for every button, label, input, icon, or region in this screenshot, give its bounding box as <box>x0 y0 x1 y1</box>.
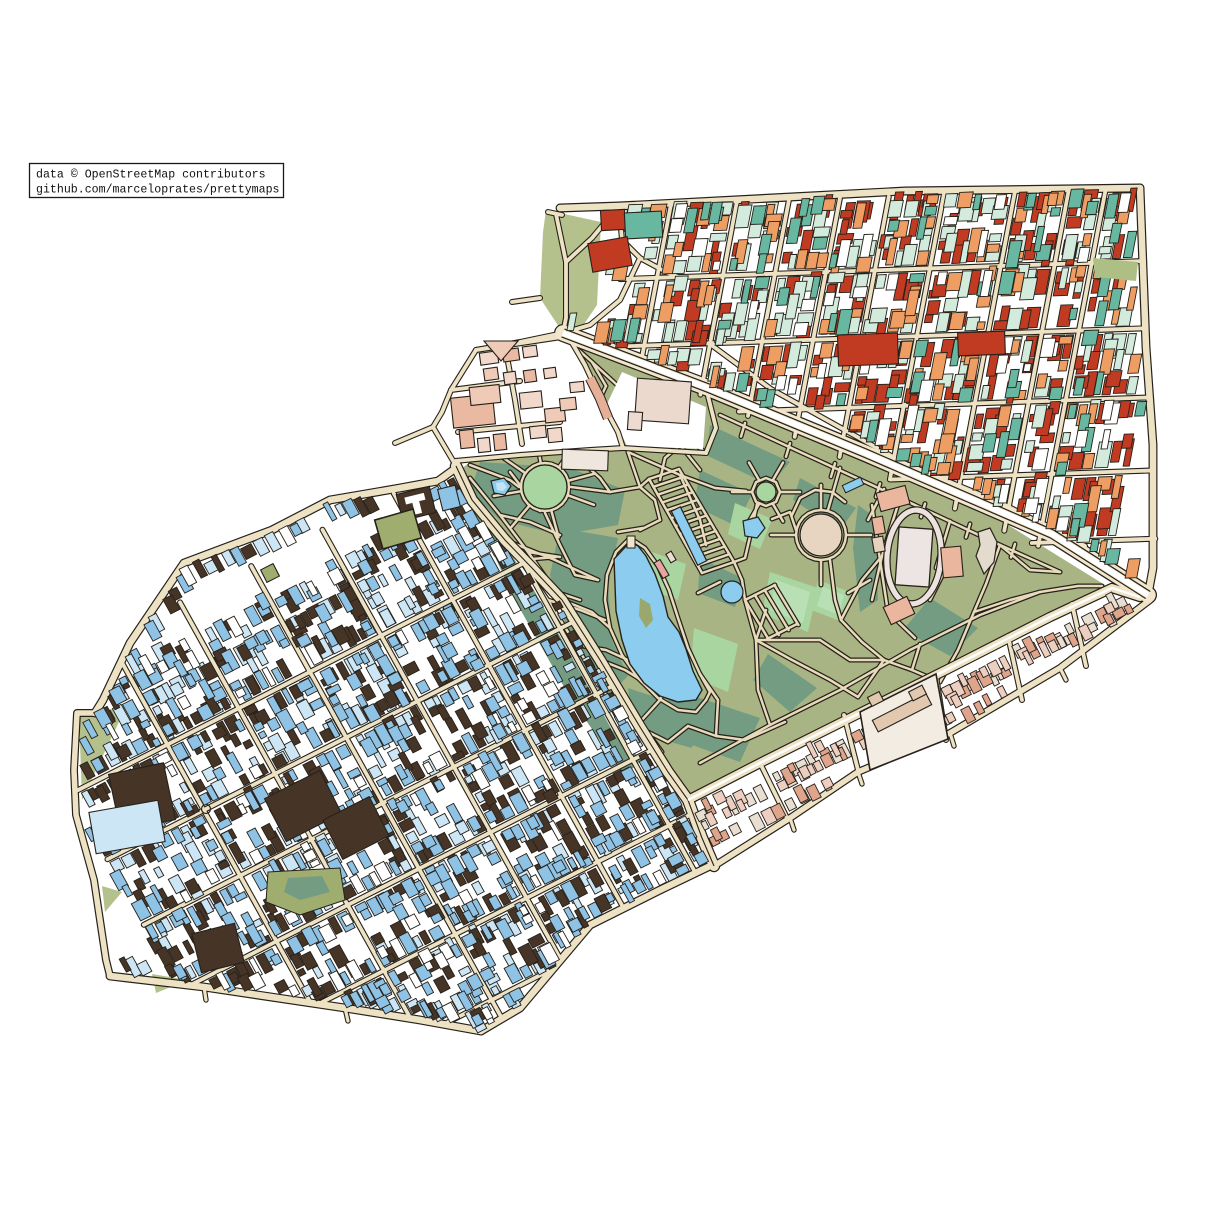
svg-text:data © OpenStreetMap contribut: data © OpenStreetMap contributors <box>36 169 266 182</box>
svg-text:github.com/marceloprates/prett: github.com/marceloprates/prettymaps <box>36 184 280 197</box>
